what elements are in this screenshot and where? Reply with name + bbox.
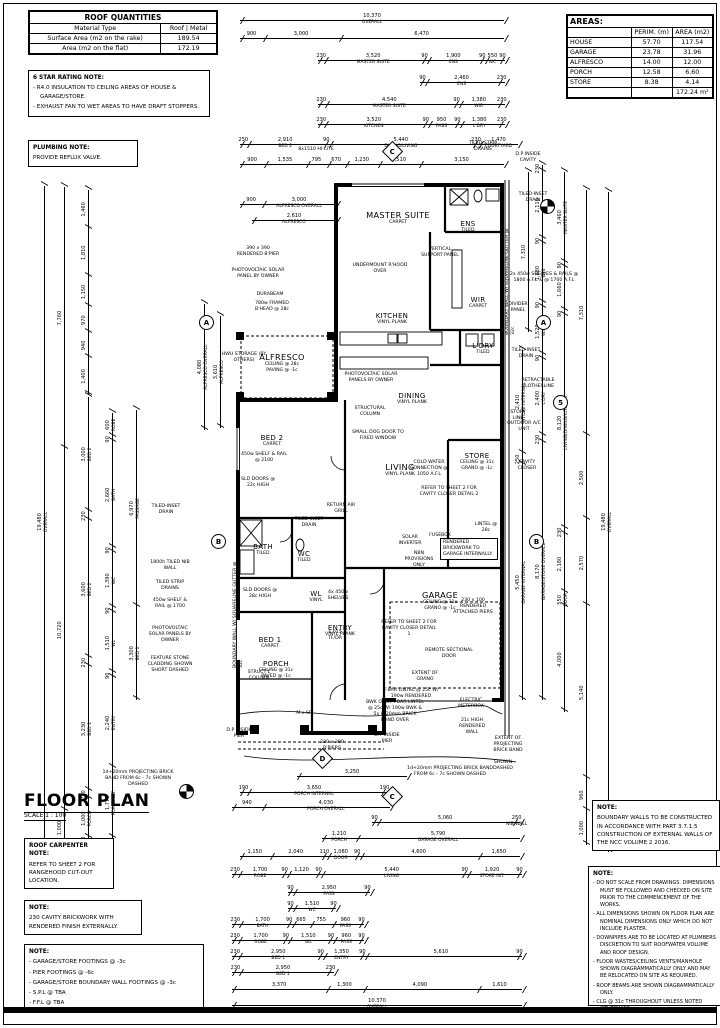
- dimension-row: 9003,0006,470: [240, 30, 504, 43]
- annotation-label: 1800h TILED NIB WALL: [150, 560, 190, 572]
- dimension-row: 1,1502,0401101,080DOOR904,6001,650: [240, 848, 520, 861]
- annotation-label: REFER TO SHEET 2 FOR CAVITY CLOSER DETAI…: [418, 486, 480, 498]
- dimension-row: 2302,950BED 1901,350ENTRY905,61090: [232, 948, 522, 961]
- dimension-row: 9404,030PORCH OVERALL: [232, 799, 390, 812]
- dimension-segment: 5,140: [578, 606, 591, 779]
- footings-note: NOTE: GARAGE/STORE FOOTINGS @ -3cPIER FO…: [24, 944, 204, 1008]
- dimension-segment: 1,380L'DRY: [460, 116, 499, 129]
- annotation-label: OUTDOOR A/C UNIT: [506, 421, 542, 433]
- room-label: ALFRESCOCEILING @ 28cPAVING @ -1c: [259, 352, 305, 373]
- dimension-row: 905,060250NIB WALL: [372, 814, 520, 827]
- room-label: BATHTILED: [253, 543, 273, 557]
- dimension-segment: 4,030PORCH OVERALL: [262, 799, 390, 812]
- annotation-label: BWK OVER T-BAR LINTEL @ 25c W/ 190w BWK …: [366, 700, 424, 724]
- dimension-row: 3,3701,3004,0901,610: [232, 981, 522, 994]
- dimension-segment: 3,520KITCHEN: [324, 116, 423, 129]
- dimension-segment: 2,570: [578, 520, 591, 606]
- brickwork-note: NOTE: 230 CAVITY BRICKWORK WITH RENDERED…: [24, 900, 142, 935]
- dimension-segment: 2,240ENTRY: [104, 678, 117, 767]
- annotation-label: BOUNDARY WALL W/ SQUARELINE GUTTER @ 32c: [233, 558, 245, 668]
- dimension-segment: 3,230BED 1: [80, 667, 93, 791]
- north-compass-icon: N: [179, 784, 194, 799]
- annotation-label: RENDERED BRICKWORK TO GARAGE INTERNALLY.: [440, 538, 498, 560]
- annotation-label: REMOTE SECTIONAL DOOR: [424, 648, 474, 660]
- dimension-segment: 2,500: [578, 436, 591, 520]
- dimension-segment: 3,250: [297, 768, 407, 781]
- room-label: STORECEILING @ 31cGRANO @ -1c: [460, 452, 494, 471]
- dimension-column: 1,4009409701,1501,8101,460: [80, 190, 93, 395]
- room-label: WLVINYL: [309, 590, 322, 604]
- dimension-segment: 8,170GARAGE/STORE OVERALL: [534, 443, 547, 700]
- footings-note-items: GARAGE/STORE FOOTINGS @ -3cPIER FOOTINGS…: [29, 958, 199, 1007]
- annotation-label: NBN PROVISIONS ONLY: [402, 551, 436, 569]
- dimension-row: 3,250: [297, 768, 407, 781]
- annotation-label: FEATURE STONE CLADDING SHOWN SHORT DASHE…: [146, 656, 194, 674]
- annotation-label: 2x 450w SHELVES & RAILS @ 1800 A.F.L & @…: [504, 272, 584, 284]
- annotation-label: EXTENT OF PROJECTING BRICK BAND: [486, 736, 530, 754]
- dimension-segment: 3,520MASTER SUITE: [324, 52, 422, 65]
- dimension-segment: 10,720: [56, 449, 69, 811]
- section-marker-5: 5: [553, 395, 568, 410]
- annotation-label: TILED STRIP DRAINS: [150, 580, 190, 592]
- dimension-segment: 3,300BED 1: [128, 607, 141, 700]
- note-item: CLG @ 31c THROUGHOUT UNLESS NOTED OTHERW…: [593, 999, 717, 1014]
- dimension-column: 3,300BED 16,970PASSAGE: [128, 410, 141, 700]
- note-item: DOWNPIPES ARE TO BE LOCATED AT PLUMBERS …: [593, 935, 717, 957]
- note-item: PIER FOOTINGS @ -6c: [29, 969, 199, 977]
- dimension-segment: 5,610: [365, 948, 517, 961]
- annotation-label: 4x 450w SHELVES: [322, 590, 354, 602]
- room-label: WCTILED: [297, 550, 310, 564]
- north-compass-icon: N: [540, 199, 555, 214]
- dimension-segment: 1,150: [80, 277, 93, 308]
- dimension-row: 2303,520MASTER SUITE901,900ENS90550WC90: [318, 52, 505, 65]
- annotation-label: TILED-INSET DRAIN: [292, 517, 326, 529]
- dimension-segment: 1,610: [477, 981, 522, 994]
- boundary-walls-note: NOTE: BOUNDARY WALLS TO BE CONSTRUCTED I…: [592, 800, 720, 851]
- brickwork-note-body: 230 CAVITY BRICKWORK WITH RENDERED FINIS…: [29, 914, 137, 930]
- annotation-label: SMALL DOG DOOR TO FIXED WINDOW: [348, 430, 408, 442]
- annotation-label: 780w FRAMED B'HEAD @ 28c: [246, 301, 298, 313]
- annotation-label: SLD DOORS @ 28c HIGH: [240, 588, 280, 600]
- room-label: BED 1CARPET: [259, 636, 282, 650]
- dimension-segment: 1,300: [326, 981, 362, 994]
- note-item: S.P.L @ TBA: [29, 989, 199, 997]
- note-item: FLOOR WASTES/CEILING VENTS/MANHOLE SHOWN…: [593, 959, 717, 981]
- dimension-segment: 5,060: [377, 814, 513, 827]
- note-item: ROOF BEAMS ARE SHOWN DIAGRAMMATICALLY ON…: [593, 983, 717, 998]
- page-title: FLOOR PLAN: [24, 791, 149, 813]
- note-item: DO NOT SCALE FROM DRAWINGS. DIMENSIONS M…: [593, 880, 717, 909]
- dimension-segment: 1,700BATH: [239, 916, 287, 929]
- annotation-label: M x SP: [294, 711, 314, 717]
- annotation-label: D.P INSIDE CAVITY: [508, 152, 548, 164]
- dimension-segment: 4,000: [556, 607, 569, 712]
- dimension-column: 1901,000PORCH2303,230BED 12303,600BED 22…: [80, 397, 93, 845]
- note-item: GARAGE/STORE FOOTINGS @ -3c: [29, 958, 199, 966]
- boundary-walls-note-title: NOTE:: [597, 804, 715, 812]
- dimension-segment: 2,460ENS: [425, 74, 498, 87]
- dimension-segment: 1,700ROBE: [238, 866, 282, 879]
- dimension-segment: 970: [80, 307, 93, 333]
- section-marker-a: A: [536, 315, 551, 330]
- dimension-segment: 4,540MASTER SUITE: [325, 96, 455, 109]
- annotation-label: UNDERMOUNT R'HOOD OVER: [352, 263, 408, 275]
- roof-carpenter-note: ROOF CARPENTER NOTE: REFER TO SHEET 2 FO…: [24, 838, 114, 889]
- annotation-label: STORY LINE: [506, 410, 530, 422]
- annotation-label: T-BAR LINTEL @ 25c W/ 190w RENDERED: [380, 688, 442, 700]
- dimension-segment: 8,120LIVING/DINING/KITCHEN: [556, 316, 569, 529]
- annotation-label: 8x1510 HI-LITE: [296, 147, 336, 153]
- dimension-segment: 19,480OVERALL: [36, 186, 49, 858]
- dimension-segment: 3,000ALFRESCO OVERALL: [262, 196, 336, 209]
- roof-carpenter-note-body: REFER TO SHEET 2 FOR RANGEHOOD CUT-OUT L…: [29, 861, 109, 885]
- dimension-segment: 3,370: [232, 981, 326, 994]
- annotation-label: D.P INSIDE PIER: [372, 733, 402, 745]
- general-note-title: NOTE:: [593, 870, 717, 878]
- room-label: KITCHENVINYL PLANK: [376, 312, 408, 326]
- dimension-segment: 3,460MASTER SUITE: [556, 172, 569, 263]
- room-label: DININGVINYL PLANK: [397, 392, 427, 406]
- dimension-row: 10,370OVERALL: [232, 997, 522, 1010]
- footings-note-title: NOTE:: [29, 948, 199, 956]
- room-label: BED 2CARPET: [261, 434, 284, 448]
- dimension-segment: 1,510: [378, 156, 419, 169]
- dimension-segment: 19,480OVERALL: [600, 192, 613, 852]
- annotation-label: 450w SHELF & RAIL @ 2100: [240, 452, 288, 464]
- dimension-row: 2303,520KITCHEN90950PASS901,380L'DRY230: [318, 116, 505, 129]
- section-marker-b: B: [529, 534, 544, 549]
- room-label: ENSTILED: [460, 220, 475, 234]
- dimension-segment: 5,450GARAGE INTERNAL: [514, 465, 527, 700]
- dimension-column: 1,00010,7207,760: [56, 187, 69, 845]
- note-item: F.F.L @ TBA: [29, 999, 199, 1007]
- dimension-row: 1,210PORCH5,790GARAGE OVERALL: [322, 830, 520, 843]
- dimension-segment: 2,040: [270, 848, 322, 861]
- room-label: WIRCARPET: [469, 296, 487, 310]
- dimension-row: 2301,700ROBE901,510WL90960PASS90: [232, 932, 364, 945]
- dimension-segment: 2,950BED 1: [239, 964, 327, 977]
- dimension-column: 5,450GARAGE INTERNAL2502,410STORE INTERN…: [514, 350, 527, 700]
- note-item: GARAGE/STORE BOUNDARY WALL FOOTINGS @ -3…: [29, 979, 199, 987]
- dimension-row: 9003,000ALFRESCO OVERALL: [240, 196, 336, 209]
- annotation-label: DIVIDER PANEL: [504, 302, 532, 314]
- dimension-segment: 1,460: [80, 190, 93, 229]
- dimension-segment: 2,610ALFRESCO: [252, 212, 336, 225]
- room-label: L'DRYTILED: [472, 342, 493, 356]
- brickwork-note-title: NOTE:: [29, 904, 137, 912]
- annotation-label: PHOTOVOLTAIC SOLAR PANELS BY OWNER: [342, 372, 400, 384]
- annotation-label: 1d+20mm PROJECTING BRICK BAND FROM 6c - …: [404, 766, 496, 778]
- dimension-segment: 1,400: [80, 358, 93, 395]
- annotation-label: TILED-INSET DRAIN: [146, 504, 186, 516]
- dimension-segment: 4,090: [363, 981, 477, 994]
- dimension-segment: 10,370OVERALL: [232, 997, 522, 1010]
- room-label: MASTER SUITECARPET: [366, 210, 430, 226]
- dimension-segment: 1,000: [578, 811, 591, 845]
- annotation-label: CAVITY CLOSER: [512, 460, 542, 472]
- dimension-row: 10,370OVERALL: [240, 12, 504, 25]
- general-note-items: DO NOT SCALE FROM DRAWINGS. DIMENSIONS M…: [593, 880, 717, 1013]
- dimension-segment: 1,380WIR: [459, 96, 498, 109]
- dimension-row: 2301,700BATH90665755960PASS90: [232, 916, 364, 929]
- dimension-segment: 1,650: [478, 848, 520, 861]
- dimension-segment: 3,650PORCH INTERNAL: [247, 784, 381, 797]
- annotation-label: D.P INSIDE PIER: [226, 728, 252, 740]
- room-label: PORCHCEILING @ 31cPAVED @ -1c: [259, 660, 293, 679]
- dimension-segment: 1,535: [264, 156, 305, 169]
- annotation-label: 390 x 390 RENDERED B'PIER: [234, 246, 282, 258]
- annotation-label: TILED-INSET DRAIN: [506, 348, 546, 360]
- annotation-label: LINTEL @ 28c: [473, 522, 499, 534]
- annotation-label: STRUCTURAL COLUMN: [350, 406, 390, 418]
- dimension-column: 19,480OVERALL: [36, 186, 49, 858]
- dimension-segment: 5,440LIVING: [321, 866, 462, 879]
- section-marker-a: A: [199, 315, 214, 330]
- page-scale: SCALE 1 : 100: [24, 812, 66, 821]
- dimension-segment: 5,790GARAGE OVERALL: [356, 830, 520, 843]
- annotation-label: VERTICAL SUPPORT PANEL: [420, 247, 460, 259]
- dimension-column: 1,0009605,1402,5702,5007,310: [578, 190, 591, 845]
- dimension-row: 902,950PASS90: [288, 884, 370, 897]
- dimension-segment: 2,660BATH: [104, 442, 117, 548]
- annotation-label: DURABEAM: [252, 292, 288, 298]
- dimension-segment: 960: [578, 779, 591, 811]
- note-item: ALL DIMENSIONS SHOWN ON FLOOR PLAN ARE N…: [593, 911, 717, 933]
- dimension-segment: 1,510WC: [293, 900, 331, 913]
- dimension-column: 19,480OVERALL: [600, 192, 613, 852]
- general-note: NOTE: DO NOT SCALE FROM DRAWINGS. DIMENS…: [588, 866, 720, 1006]
- dimension-row: 901,510WC90: [288, 900, 336, 913]
- annotation-label: TILED STRIP DRAINS: [460, 141, 506, 153]
- annotation-label: PHOTOVOLTAIC SOLAR PANEL BY OWNER: [230, 268, 286, 280]
- dimension-segment: 3,600BED 2: [80, 521, 93, 659]
- room-label: ENTRYVINYL PLANK: [325, 624, 355, 638]
- dimension-segment: 2,410STORE INTERNAL: [514, 350, 527, 454]
- annotation-label: ELECTRIC METERBOX: [452, 698, 490, 710]
- dimension-row: 2301,700ROBE901,120905,440LIVING901,920S…: [232, 866, 522, 879]
- boundary-walls-note-body: BOUNDARY WALLS TO BE CONSTRUCTED IN ACCO…: [597, 814, 715, 846]
- annotation-label: RETURN AIR GRILL: [324, 503, 358, 515]
- dimension-segment: 7,310: [578, 190, 591, 436]
- dimension-segment: 6,470: [339, 30, 504, 43]
- section-marker-b: B: [211, 534, 226, 549]
- dimension-segment: 2,950PASS: [293, 884, 365, 897]
- annotation-label: SLD DOORS @ 22c HIGH: [238, 477, 278, 489]
- dimension-row: 902,460ENS230: [420, 74, 505, 87]
- annotation-label: REFER TO SHEET 2 FOR CAVITY CLOSER DETAI…: [380, 620, 438, 638]
- dimension-segment: 10,370OVERALL: [240, 12, 504, 25]
- dimension-segment: 3,610ALFRESCO: [212, 316, 225, 428]
- dimension-segment: 550DOOR: [556, 593, 569, 607]
- roof-carpenter-note-title: ROOF CARPENTER NOTE:: [29, 842, 109, 859]
- dimension-segment: 6,970PASSAGE: [128, 410, 141, 607]
- dimension-segment: 1,810: [80, 229, 93, 277]
- dimension-segment: 250NIB WALL: [513, 814, 520, 827]
- dimension-segment: 1,350ENTRY: [323, 948, 360, 961]
- dimension-row: 2302,950BED 1230: [232, 964, 334, 977]
- room-label: LIVINGVINYL PLANK: [385, 462, 415, 478]
- annotation-label: EXTENT OF GRANO: [404, 671, 446, 683]
- dimension-column: 3,610ALFRESCO: [212, 316, 225, 428]
- annotation-label: 450w SHELF & RAIL @ 1700: [148, 598, 192, 610]
- dimension-column: 4,000550DOOR2,1802308,120LIVING/DINING/K…: [556, 172, 569, 712]
- dimension-segment: 1,390WC: [104, 553, 117, 608]
- dimension-segment: 7,760: [56, 187, 69, 449]
- dimension-row: 2,610ALFRESCO: [252, 212, 336, 225]
- dimension-segment: 5,440DINING/LIVING: [329, 136, 473, 149]
- annotation-label: 21c HIGH RENDERED WALL: [452, 718, 492, 736]
- annotation-label: SOLAR INVERTER: [395, 535, 425, 547]
- dimension-segment: 2,180: [556, 535, 569, 592]
- dimension-row: 9001,5357956701,2301,5103,150: [240, 156, 504, 169]
- annotation-label: PHOTOVOLTAIC SOLAR PANELS BY OWNER: [144, 626, 196, 644]
- dimension-segment: 1,700ROBE: [238, 932, 283, 945]
- dimension-segment: 4,600: [360, 848, 478, 861]
- dimension-segment: 1,920STORE INT.: [467, 866, 517, 879]
- dimension-segment: 3,150: [419, 156, 504, 169]
- room-label: GARAGECEILING @ 31cGRANO @ -1c: [422, 590, 458, 611]
- dimension-segment: 3,000BED 2: [80, 397, 93, 512]
- dimension-row: 2304,540MASTER SUITE901,380WIR230: [318, 96, 505, 109]
- dimension-segment: 1,900ENS: [427, 52, 480, 65]
- dimension-segment: 3,000: [263, 30, 339, 43]
- dimension-segment: 2,950BED 1: [238, 948, 318, 961]
- annotation-label: 1d+20mm PROJECTING BRICK BAND FROM 6c - …: [96, 770, 180, 788]
- dimension-segment: 1,510WL: [288, 932, 328, 945]
- annotation-label: RETRACTABLE CLOTHESLINE: [512, 378, 564, 390]
- dimension-row: 1903,650PORCH INTERNAL190: [240, 784, 388, 797]
- floor-plan-sheet: ROOF QUANTITIES Material TypeRoof | Meta…: [0, 0, 720, 1028]
- dimension-segment: 1,510WL: [104, 613, 117, 673]
